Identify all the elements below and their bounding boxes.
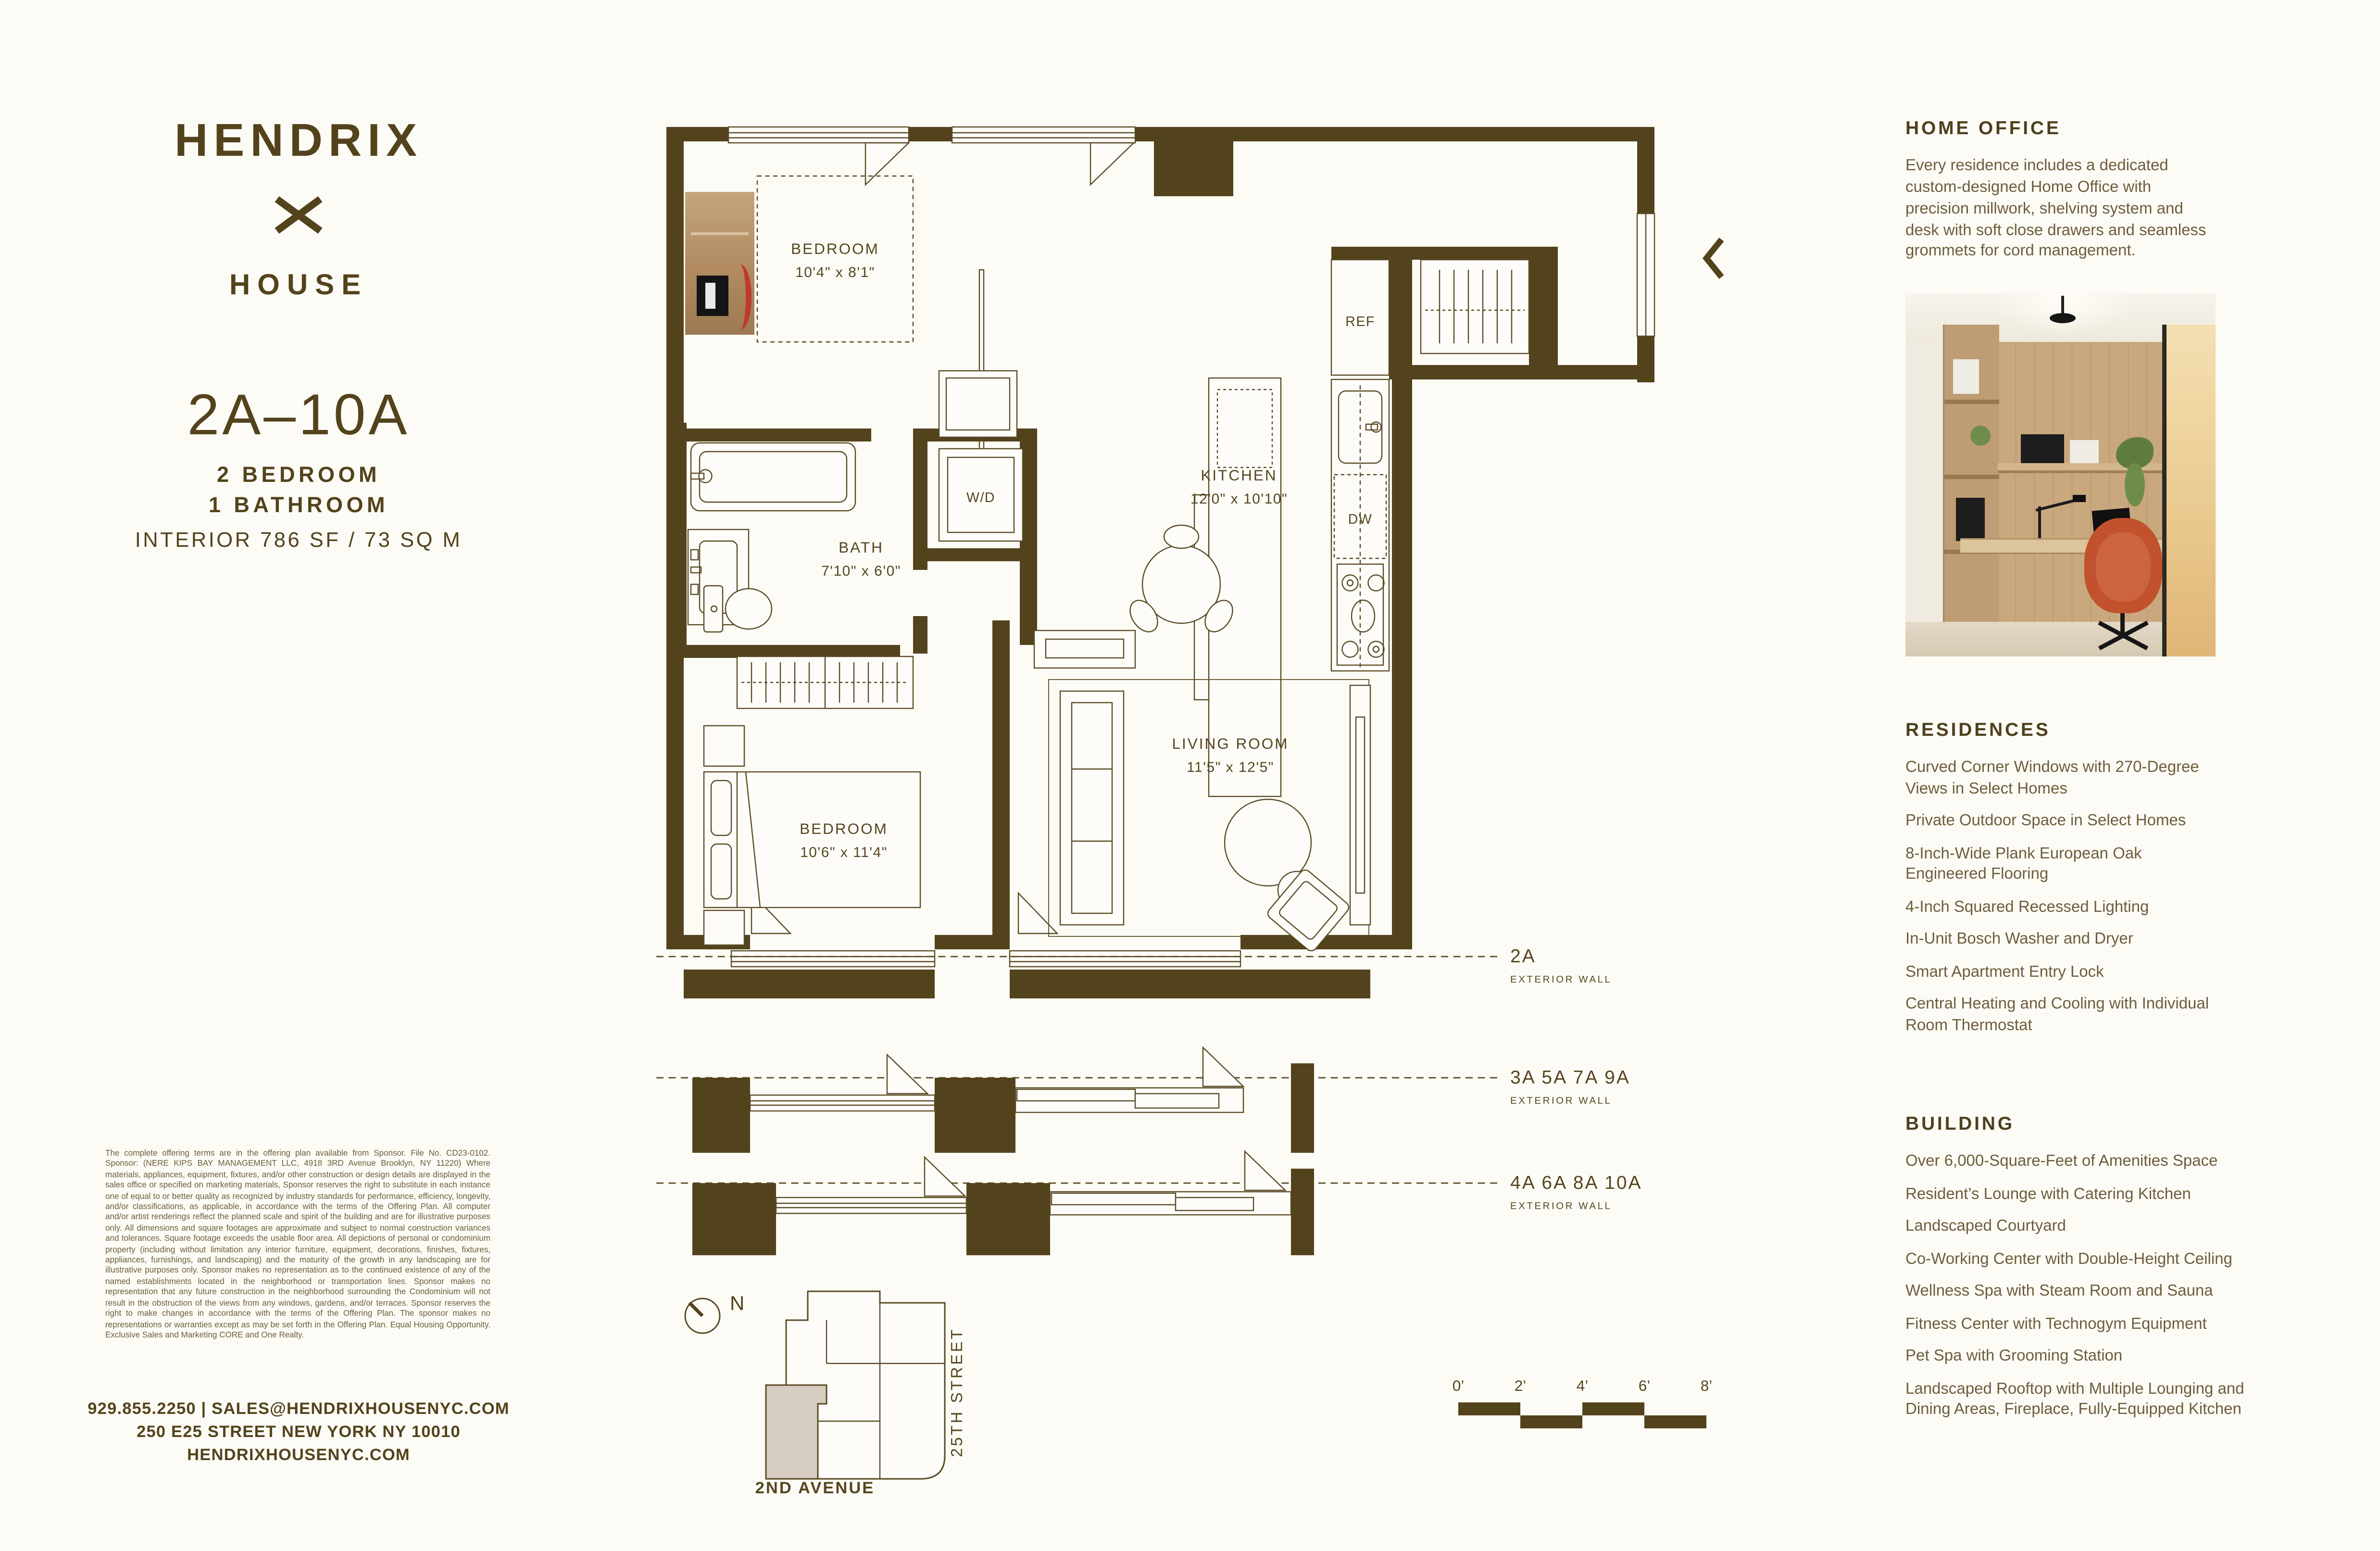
bath-dims: 7'10" x 6'0" bbox=[821, 563, 901, 579]
photo-books bbox=[1953, 359, 1979, 394]
scale-tick-8: 8’ bbox=[1701, 1377, 1713, 1394]
compass: N bbox=[685, 1292, 744, 1333]
washer-dryer-label: W/D bbox=[966, 490, 995, 505]
photo-window bbox=[2162, 325, 2216, 656]
legal-disclaimer: The complete offering terms are in the o… bbox=[105, 1150, 490, 1342]
photo-trailing-plant bbox=[2125, 463, 2145, 506]
building-item: Pet Spa with Grooming Station bbox=[1905, 1346, 2269, 1367]
residences-item: 8-Inch-Wide Plank European Oak Engineere… bbox=[1905, 844, 2244, 885]
wall-sublabel-2a: EXTERIOR WALL bbox=[1510, 974, 1612, 985]
photo-desk-lamp-head bbox=[2073, 495, 2086, 502]
living-room-label: LIVING ROOM bbox=[1172, 735, 1289, 752]
building-item: Landscaped Courtyard bbox=[1905, 1216, 2269, 1237]
building-item: Fitness Center with Technogym Equipment bbox=[1905, 1314, 2269, 1335]
bedroom-1-dims: 10'4" x 8'1" bbox=[795, 265, 875, 280]
scale-tick-6: 6’ bbox=[1639, 1377, 1651, 1394]
unit-id: 2A–10A bbox=[111, 384, 486, 449]
photo-bookshelf-column bbox=[1943, 325, 1999, 656]
building-item: Resident’s Lounge with Catering Kitchen bbox=[1905, 1184, 2269, 1205]
residences-item: In-Unit Bosch Washer and Dryer bbox=[1905, 929, 2244, 950]
scale-tick-2: 2’ bbox=[1515, 1377, 1527, 1394]
residences-item: Central Heating and Cooling with Individ… bbox=[1905, 994, 2244, 1036]
building-footprint bbox=[766, 1291, 945, 1479]
home-office-photo bbox=[1905, 293, 2216, 656]
brochure-page: HENDRIX HOUSE 2A–10A 2 BEDROOM 1 BATHROO… bbox=[0, 0, 2380, 1551]
building-item: Over 6,000-Square-Feet of Amenities Spac… bbox=[1905, 1151, 2269, 1173]
photo-shelf-books bbox=[2021, 434, 2064, 463]
photo-ceiling-lamp-stem bbox=[2061, 296, 2064, 315]
scale-bar-segments bbox=[1458, 1402, 1706, 1428]
dw-label: DW bbox=[1348, 512, 1372, 527]
contact-phone-email: 929.855.2250 | SALES@HENDRIXHOUSENYC.COM bbox=[68, 1401, 529, 1418]
contact-address: 250 E25 STREET NEW YORK NY 10010 bbox=[68, 1424, 529, 1441]
wall-variant-3a bbox=[692, 1047, 1314, 1153]
wall-variant-4a bbox=[692, 1151, 1314, 1255]
photo-ceiling-lamp bbox=[2050, 313, 2076, 323]
unit-bedrooms: 2 BEDROOM bbox=[111, 463, 486, 488]
building-list: Over 6,000-Square-Feet of Amenities Spac… bbox=[1905, 1151, 2269, 1432]
bedroom-2-furniture bbox=[704, 656, 920, 945]
residences-item: 4-Inch Squared Recessed Lighting bbox=[1905, 897, 2244, 918]
photo-shelf-books-2 bbox=[2070, 440, 2099, 463]
brand-x-icon bbox=[274, 195, 323, 235]
residences-list: Curved Corner Windows with 270-Degree Vi… bbox=[1905, 757, 2244, 1047]
living-room-dims: 11'5" x 12'5" bbox=[1187, 759, 1274, 775]
brand-sub: HOUSE bbox=[111, 270, 486, 303]
inset-red-chair-arc bbox=[728, 264, 752, 330]
wall-sublabel-3a: EXTERIOR WALL bbox=[1510, 1096, 1612, 1106]
residences-item: Smart Apartment Entry Lock bbox=[1905, 962, 2244, 983]
kitchen-fixtures bbox=[1125, 260, 1529, 796]
bath-label: BATH bbox=[839, 539, 884, 556]
inset-shelf bbox=[691, 232, 749, 235]
building-item: Wellness Spa with Steam Room and Sauna bbox=[1905, 1281, 2269, 1302]
photo-left-wall bbox=[1905, 336, 1943, 656]
bedroom-1-label: BEDROOM bbox=[791, 240, 879, 257]
key-plan-map: N 25TH STREET 2ND AVENUE bbox=[678, 1277, 981, 1508]
north-label: N bbox=[730, 1292, 744, 1314]
building-item: Landscaped Rooftop with Multiple Loungin… bbox=[1905, 1379, 2269, 1421]
residences-item: Curved Corner Windows with 270-Degree Vi… bbox=[1905, 757, 2244, 799]
building-item: Co-Working Center with Double-Height Cei… bbox=[1905, 1249, 2269, 1270]
bedroom-2-dims: 10'6" x 11'4" bbox=[800, 845, 888, 860]
residences-heading: RESIDENCES bbox=[1905, 719, 2252, 740]
contact-website: HENDRIXHOUSENYC.COM bbox=[68, 1447, 529, 1464]
wall-label-4a: 4A 6A 8A 10A bbox=[1510, 1173, 1642, 1193]
plan-home-office-inset-photo bbox=[685, 192, 754, 335]
photo-plant-small bbox=[1970, 426, 1991, 446]
street-label-2nd-ave: 2ND AVENUE bbox=[755, 1479, 875, 1497]
bath-fixtures bbox=[688, 443, 855, 632]
kitchen-dims: 12'0" x 10'10" bbox=[1190, 491, 1288, 507]
scale-tick-4: 4’ bbox=[1577, 1377, 1589, 1394]
unit-area: INTERIOR 786 SF / 73 SQ M bbox=[82, 530, 515, 553]
photo-orange-chair-seat bbox=[2096, 532, 2151, 602]
ref-label: REF bbox=[1345, 314, 1375, 329]
scale-tick-0: 0’ bbox=[1453, 1377, 1465, 1394]
highlighted-unit bbox=[766, 1385, 827, 1479]
laundry-closet bbox=[939, 371, 1023, 541]
street-label-25th: 25TH STREET bbox=[948, 1327, 965, 1457]
floor-plan: BEDROOM 10'4" x 8'1" BATH 7'10" x 6'0" W… bbox=[656, 108, 1724, 1262]
residences-item: Private Outdoor Space in Select Homes bbox=[1905, 811, 2244, 832]
home-office-body: Every residence includes a dedicated cus… bbox=[1905, 156, 2226, 263]
wall-label-2a: 2A bbox=[1510, 946, 1536, 967]
wall-sublabel-4a: EXTERIOR WALL bbox=[1510, 1201, 1612, 1211]
inset-screen bbox=[705, 283, 715, 309]
wall-label-3a: 3A 5A 7A 9A bbox=[1510, 1067, 1630, 1088]
brand-name: HENDRIX bbox=[111, 114, 486, 167]
scale-bar: 0’ 2’ 4’ 6’ 8’ bbox=[1447, 1375, 1721, 1444]
bedroom-2-label: BEDROOM bbox=[800, 820, 888, 837]
kitchen-label: KITCHEN bbox=[1201, 467, 1277, 484]
home-office-heading: HOME OFFICE bbox=[1905, 117, 2252, 139]
photo-desk-lamp bbox=[2038, 506, 2041, 541]
building-heading: BUILDING bbox=[1905, 1112, 2252, 1134]
photo-books-dark bbox=[1956, 498, 1985, 541]
unit-bathrooms: 1 BATHROOM bbox=[111, 493, 486, 518]
chevron-left-icon[interactable] bbox=[1701, 235, 1725, 281]
